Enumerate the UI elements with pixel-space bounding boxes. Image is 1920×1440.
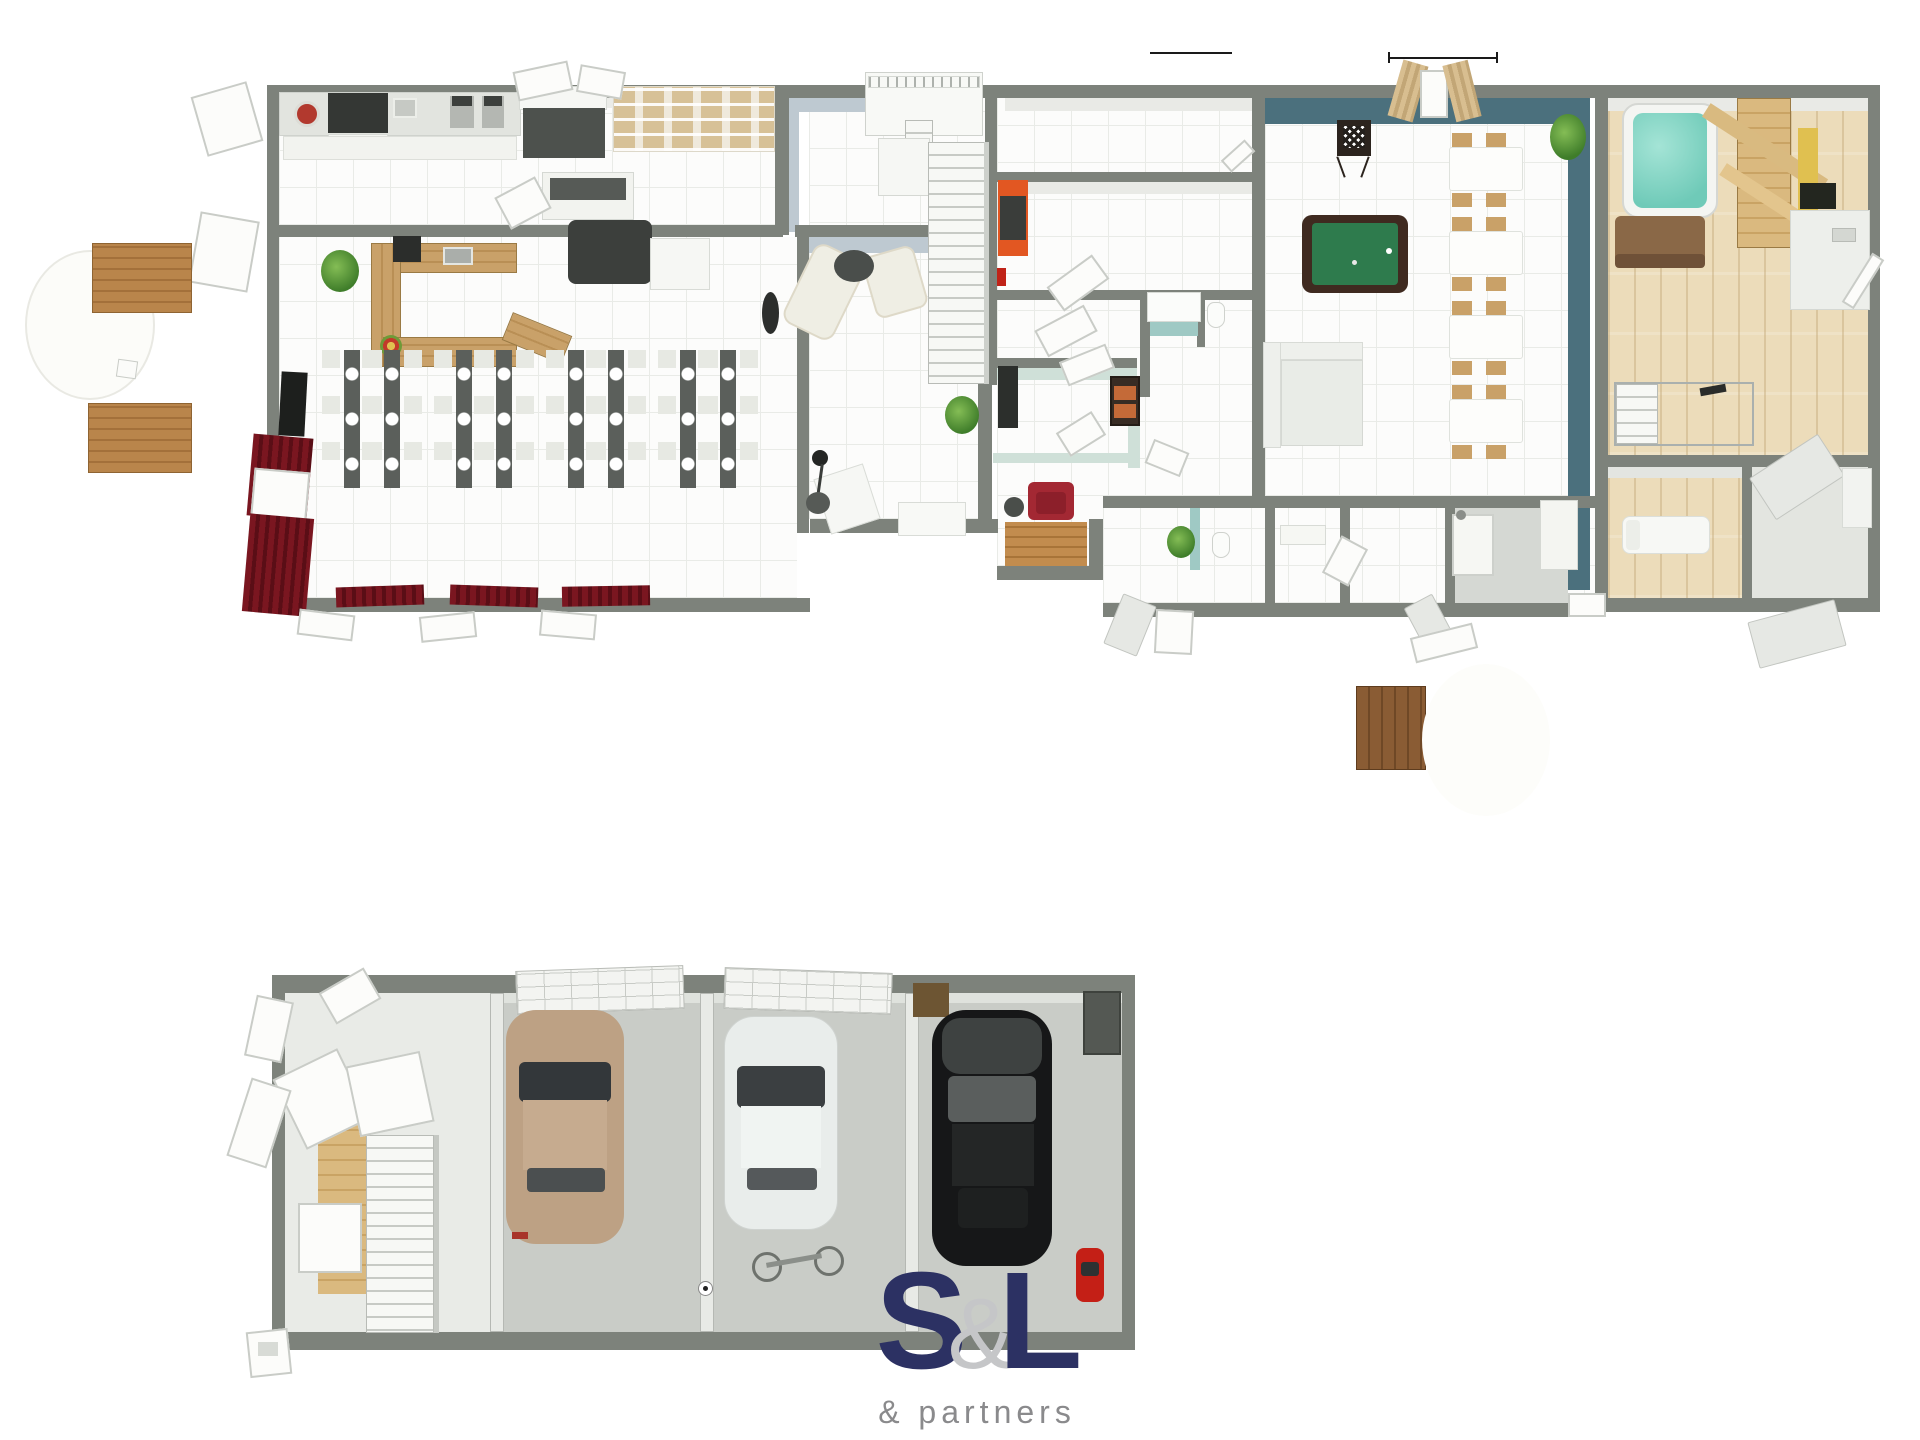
car-white-windshield bbox=[737, 1066, 825, 1108]
hot-tub-water bbox=[1633, 113, 1707, 208]
kitchen-red-pot bbox=[294, 101, 320, 127]
shower-head bbox=[1456, 510, 1466, 520]
studio-kitchen-sink bbox=[1832, 228, 1856, 242]
studio-wardrobe bbox=[1737, 98, 1791, 248]
stair-opening-steps bbox=[1616, 384, 1658, 444]
dining-table-6 bbox=[586, 350, 646, 488]
coffee-machine-1-top bbox=[452, 96, 472, 106]
boiler-room-wall-band bbox=[1005, 182, 1252, 194]
games-table-3-chairs-top bbox=[1452, 301, 1520, 315]
pool-ball-1 bbox=[1386, 248, 1392, 254]
storeroom-wall-band bbox=[1005, 98, 1252, 111]
stool-dark bbox=[1004, 497, 1024, 517]
games-plant bbox=[1550, 114, 1586, 160]
garage-cabinet bbox=[1083, 991, 1121, 1055]
cash-register bbox=[393, 236, 421, 262]
brand-logo-subtitle: & partners bbox=[852, 1394, 1102, 1431]
entry-porch-railing bbox=[868, 76, 980, 88]
window-curtain-left-lower bbox=[242, 513, 314, 616]
fire-extinguisher bbox=[997, 268, 1006, 286]
hall-accent-wall-left bbox=[789, 112, 799, 232]
wood-deck-steps bbox=[1005, 522, 1087, 566]
toilet-1 bbox=[1207, 302, 1225, 328]
car-white-roof bbox=[741, 1106, 821, 1168]
wall-strip-div-1 bbox=[1265, 508, 1275, 603]
garage-glass-box bbox=[298, 1203, 362, 1273]
kitchen-hood-top bbox=[550, 178, 626, 200]
mint-room-cabinet bbox=[998, 366, 1018, 428]
dining-table-2 bbox=[362, 350, 422, 488]
dimension-tick-2 bbox=[1496, 52, 1498, 63]
kitchen-fridges bbox=[523, 108, 605, 158]
storage-basket-rack bbox=[613, 86, 775, 152]
dining-table-8 bbox=[698, 350, 758, 488]
window-bottom-1 bbox=[297, 609, 356, 642]
wall-hall-lounge bbox=[795, 225, 930, 237]
brand-logo: S&L & partners bbox=[852, 1252, 1102, 1431]
wall-mid-right bbox=[978, 380, 992, 533]
wall-nook-bottom bbox=[997, 566, 1103, 580]
bedroom-bed-pillow bbox=[1626, 520, 1640, 550]
wall-games-bottom bbox=[1103, 496, 1595, 508]
games-counter-left bbox=[1263, 342, 1281, 448]
wall-kitchen-dining bbox=[267, 225, 783, 237]
games-table-2-chairs-top bbox=[1452, 217, 1520, 231]
car-white-rear-glass bbox=[747, 1168, 817, 1190]
games-window-top bbox=[1420, 70, 1448, 118]
window-curtain-bottom-3 bbox=[562, 585, 650, 607]
picnic-table-1 bbox=[92, 243, 192, 313]
bath-vanity bbox=[1147, 292, 1201, 322]
wall-bedroom-divider bbox=[1742, 467, 1752, 607]
display-shelf-2 bbox=[1114, 404, 1136, 418]
bicycle-wheel-2 bbox=[814, 1246, 844, 1276]
garage-door-1 bbox=[515, 965, 684, 1015]
display-case bbox=[1110, 376, 1140, 426]
floor-plan: S&L & partners bbox=[0, 0, 1920, 1440]
wall-room-divider-2 bbox=[997, 290, 1252, 300]
garage-step-out-sink bbox=[258, 1342, 278, 1356]
window-left-1 bbox=[191, 81, 264, 157]
logo-letter-l: L bbox=[998, 1244, 1078, 1398]
brand-logo-main: S&L bbox=[852, 1252, 1102, 1390]
picnic-table-dark bbox=[1356, 686, 1426, 770]
display-shelf-1 bbox=[1114, 386, 1136, 400]
car-tan-taillight bbox=[512, 1232, 528, 1239]
bedroom-wall-band bbox=[1608, 467, 1742, 478]
games-table-3-chairs-bot bbox=[1452, 361, 1520, 375]
car-black-windshield bbox=[948, 1076, 1036, 1122]
plant-hall bbox=[945, 396, 979, 434]
garage-brown-box bbox=[913, 983, 949, 1017]
car-tan-roof bbox=[523, 1100, 607, 1170]
games-table-4-chairs-top bbox=[1452, 385, 1520, 399]
dining-tv bbox=[278, 371, 307, 436]
sideboard-white bbox=[898, 502, 966, 536]
staircase-railing bbox=[984, 142, 989, 384]
pool-table-felt bbox=[1312, 223, 1398, 285]
window-bottom-3 bbox=[539, 610, 597, 641]
kitchen-sink bbox=[393, 98, 417, 118]
step-out-mid bbox=[1154, 609, 1194, 655]
games-table-1 bbox=[1449, 147, 1523, 191]
bar-plant bbox=[321, 250, 359, 292]
games-table-4 bbox=[1449, 399, 1523, 443]
apt-right-shelf bbox=[1842, 468, 1872, 528]
games-table-2 bbox=[1449, 231, 1523, 275]
window-curtain-bottom-1 bbox=[336, 584, 425, 607]
games-table-1-chairs-bot bbox=[1452, 193, 1520, 207]
ottoman-gray bbox=[806, 492, 830, 514]
window-curtain-bottom-2 bbox=[450, 584, 539, 607]
side-table-black bbox=[762, 292, 779, 334]
wall-room-divider-1 bbox=[997, 172, 1252, 182]
main-staircase bbox=[928, 142, 986, 384]
soccer-ball-dot bbox=[703, 1286, 708, 1291]
red-armchair-seat bbox=[1036, 492, 1066, 514]
boiler-stove-front bbox=[1000, 196, 1026, 240]
dartboard-face bbox=[1343, 126, 1365, 148]
strip-shelf bbox=[1280, 525, 1326, 545]
shower-tray bbox=[1452, 514, 1494, 576]
garage-wall-div-1 bbox=[490, 993, 504, 1332]
lounge-round-table bbox=[834, 250, 874, 282]
games-table-4-chairs-bot bbox=[1452, 445, 1520, 459]
car-tan-windshield bbox=[519, 1062, 611, 1102]
pool-ball-2 bbox=[1352, 260, 1357, 265]
dining-table-4 bbox=[474, 350, 534, 488]
bath-vanity-cabinet bbox=[1150, 322, 1198, 336]
garage-wall-right bbox=[1122, 975, 1135, 1350]
dimension-line-2 bbox=[1390, 57, 1498, 59]
garage-wall-top bbox=[272, 975, 1135, 993]
car-tan-rear-glass bbox=[527, 1168, 605, 1192]
toilet-2 bbox=[1212, 532, 1230, 558]
games-table-2-chairs-bot bbox=[1452, 277, 1520, 291]
games-table-3 bbox=[1449, 315, 1523, 359]
mint-wall-lower bbox=[993, 453, 1135, 463]
car-black-mid bbox=[952, 1124, 1034, 1186]
garage-stairs-railing bbox=[434, 1135, 439, 1333]
car-black-rear-glass bbox=[958, 1188, 1028, 1228]
coffee-machine-2-top bbox=[484, 96, 502, 106]
window-bottom-2 bbox=[419, 611, 477, 643]
garage-stairs bbox=[366, 1135, 434, 1333]
strip-sink-cabinet bbox=[1540, 500, 1578, 570]
games-table-1-chairs-top bbox=[1452, 133, 1520, 147]
patio-umbrella-right bbox=[1422, 664, 1550, 816]
studio-sofa-back bbox=[1615, 254, 1705, 268]
garage-door-2 bbox=[723, 967, 892, 1015]
kitchen-white-cabinet bbox=[650, 238, 710, 290]
wc2-plant bbox=[1167, 526, 1195, 558]
studio-stove bbox=[1800, 183, 1836, 209]
car-black-hood bbox=[942, 1018, 1042, 1074]
games-platform bbox=[1281, 360, 1363, 446]
kitchen-range bbox=[328, 93, 388, 133]
window-left-2 bbox=[188, 211, 260, 292]
kitchen-counter-2 bbox=[283, 136, 517, 160]
dimension-tick-1 bbox=[1388, 52, 1390, 63]
stair-landing bbox=[878, 138, 930, 196]
picnic-table-2 bbox=[88, 403, 192, 473]
patio-small-table bbox=[116, 359, 138, 380]
kitchen-black-island bbox=[568, 220, 652, 284]
wall-nook-right bbox=[1089, 519, 1103, 580]
dimension-line-1 bbox=[1150, 52, 1232, 54]
wall-apartment-left bbox=[1595, 85, 1608, 612]
wall-kitchen-hall bbox=[775, 85, 789, 235]
apt-step-out bbox=[1568, 593, 1606, 617]
bar-sink bbox=[443, 247, 473, 265]
